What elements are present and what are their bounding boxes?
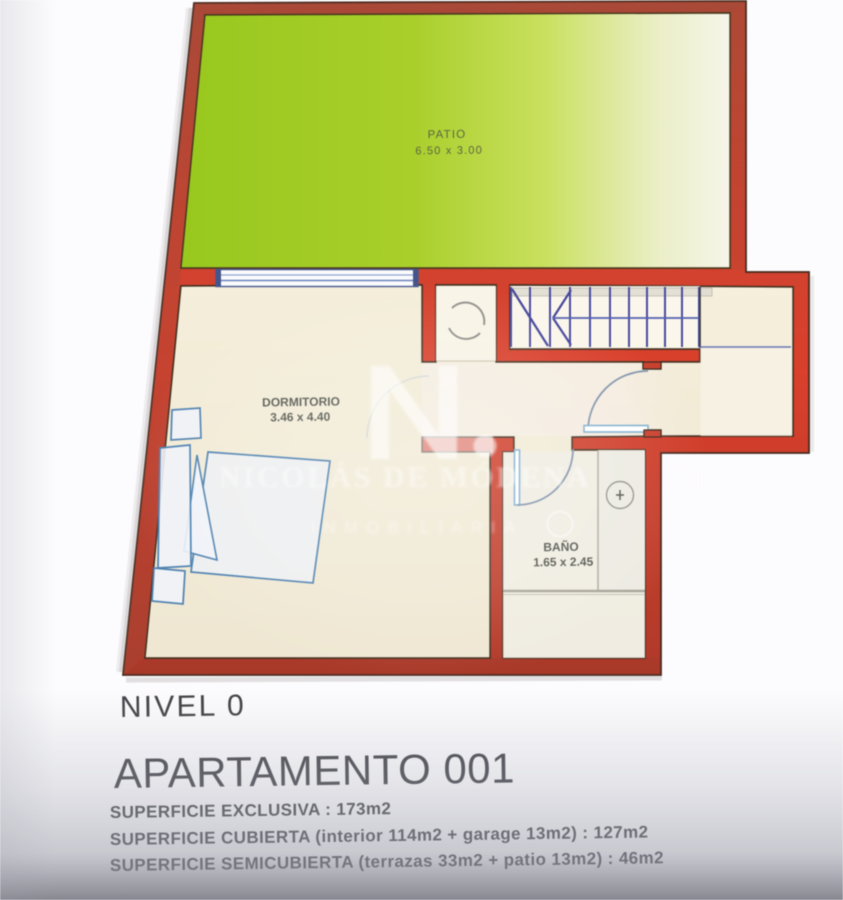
svg-text:NICOLÁS DE MÓDENA: NICOLÁS DE MÓDENA xyxy=(219,461,592,494)
svg-text:PATIO: PATIO xyxy=(428,129,467,141)
svg-text:6.50 x 3.00: 6.50 x 3.00 xyxy=(415,145,483,158)
svg-text:INMOBILIARIA: INMOBILIARIA xyxy=(311,519,524,537)
